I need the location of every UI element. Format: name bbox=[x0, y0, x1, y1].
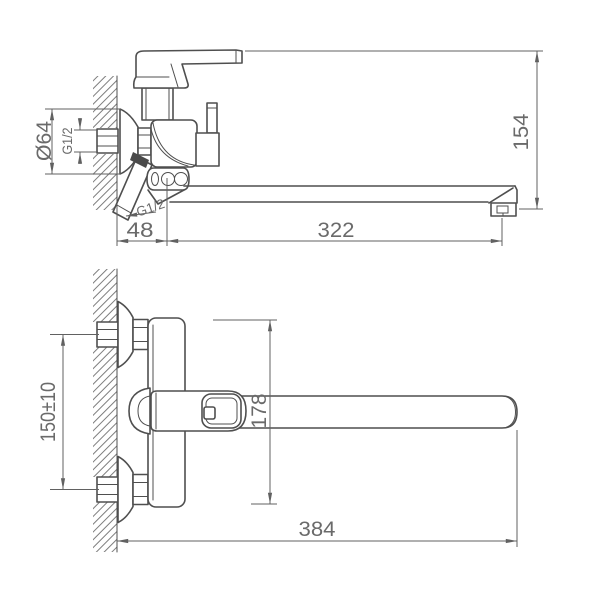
diverter-knob-side bbox=[196, 103, 219, 166]
knob-tab bbox=[204, 407, 215, 419]
technical-drawing-page: Ø64 G1/2 G1/2 48 322 154 bbox=[0, 0, 600, 600]
overall-length-label: 384 bbox=[299, 518, 336, 541]
dimension-inlet-spacing: 150±10 bbox=[37, 335, 99, 490]
dimension-inlet-thread: G1/2 bbox=[60, 118, 98, 164]
overall-height-label: 154 bbox=[510, 113, 533, 150]
supply-fitting-plan-bottom bbox=[97, 477, 118, 502]
lever-handle-side bbox=[134, 50, 242, 88]
connection-nut-plan-top bbox=[133, 320, 148, 350]
side-view: Ø64 G1/2 G1/2 48 322 154 bbox=[33, 50, 543, 246]
lever-pivot-dome-plan bbox=[129, 388, 150, 434]
lever-handle-plan bbox=[151, 391, 246, 431]
supply-fitting-side bbox=[97, 129, 118, 153]
spout-reach-label: 322 bbox=[318, 219, 355, 242]
cartridge-housing bbox=[142, 88, 173, 120]
faucet-technical-drawing: Ø64 G1/2 G1/2 48 322 154 bbox=[0, 0, 600, 600]
handle-knob-plan bbox=[202, 394, 241, 428]
flange-diameter-label: Ø64 bbox=[33, 121, 56, 161]
escutcheon-plan-top bbox=[118, 302, 133, 368]
escutcheon-plan-bottom bbox=[118, 457, 133, 523]
supply-fitting-plan-top bbox=[97, 322, 118, 347]
aerator bbox=[491, 203, 516, 216]
plan-view: 150±10 178 384 bbox=[37, 269, 517, 552]
spout-side bbox=[170, 186, 517, 216]
shower-thread-label: G1/2 bbox=[134, 196, 166, 220]
wall-section-plan bbox=[93, 269, 118, 552]
inlet-spacing-label: 150±10 bbox=[37, 382, 60, 442]
inlet-thread-label: G1/2 bbox=[60, 128, 75, 155]
mixer-body-side bbox=[142, 88, 197, 167]
dimension-spout-reach: 322 bbox=[167, 218, 502, 246]
wall-offset-label: 48 bbox=[127, 219, 154, 242]
body-depth-label: 178 bbox=[248, 394, 271, 429]
connection-nut-side bbox=[138, 128, 151, 155]
connection-nut-plan-bottom bbox=[133, 475, 148, 505]
